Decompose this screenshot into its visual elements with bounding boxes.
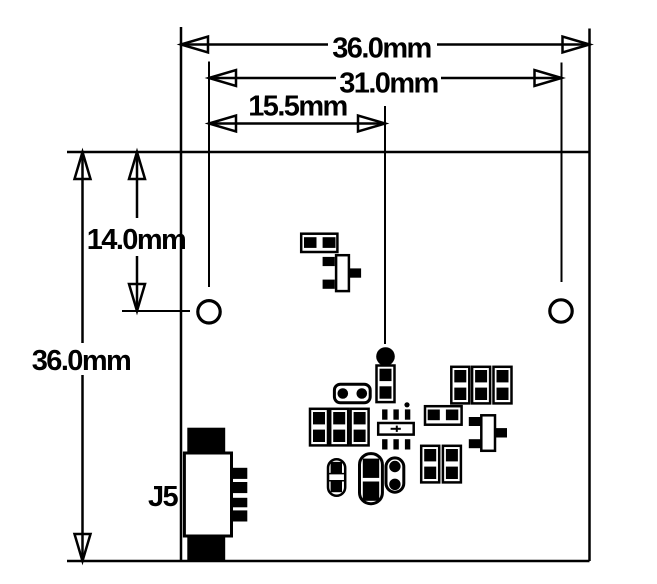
svg-text:36.0mm: 36.0mm [32,345,130,377]
svg-text:J5: J5 [148,481,179,513]
svg-text:31.0mm: 31.0mm [339,68,437,100]
svg-text:15.5mm: 15.5mm [248,91,346,123]
svg-text:14.0mm: 14.0mm [87,224,185,256]
svg-text:36.0mm: 36.0mm [332,33,430,65]
